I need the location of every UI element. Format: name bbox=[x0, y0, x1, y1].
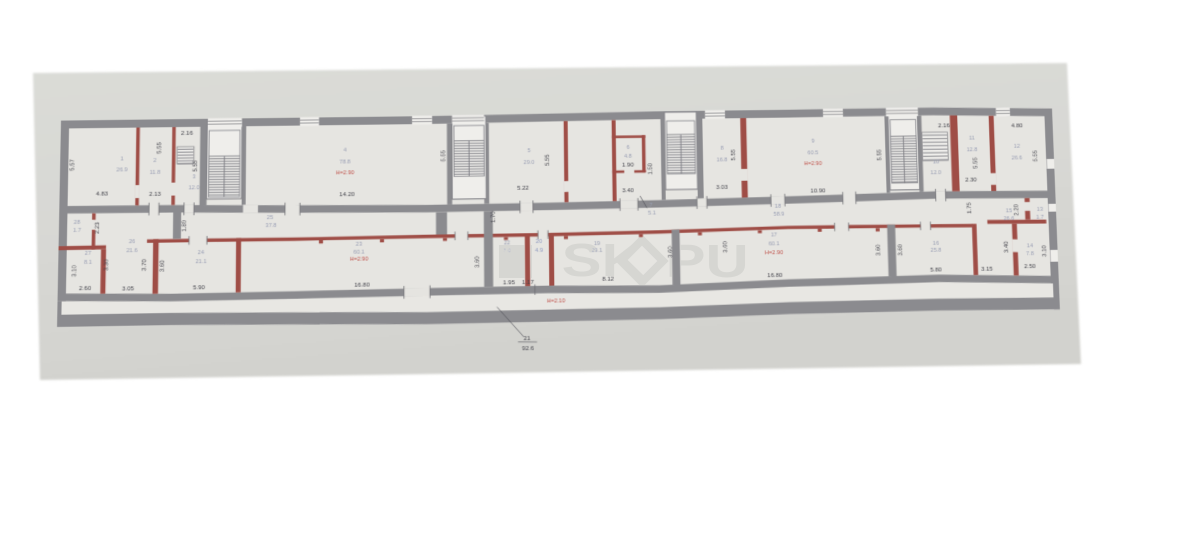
svg-text:SK: SK bbox=[562, 235, 646, 286]
svg-text:PU: PU bbox=[666, 236, 749, 287]
